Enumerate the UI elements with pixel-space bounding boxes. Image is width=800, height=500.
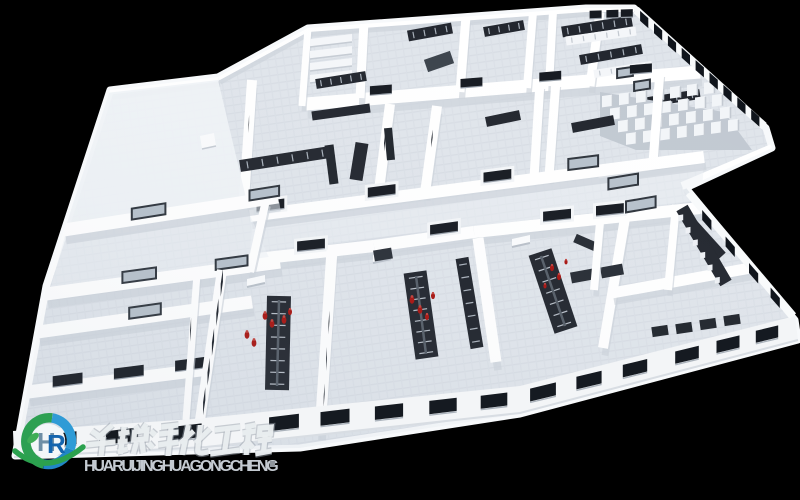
svg-text:HUARUIJINGHUAGONGCHENG: HUARUIJINGHUAGONGCHENG	[84, 458, 278, 475]
svg-text:R: R	[47, 429, 66, 459]
